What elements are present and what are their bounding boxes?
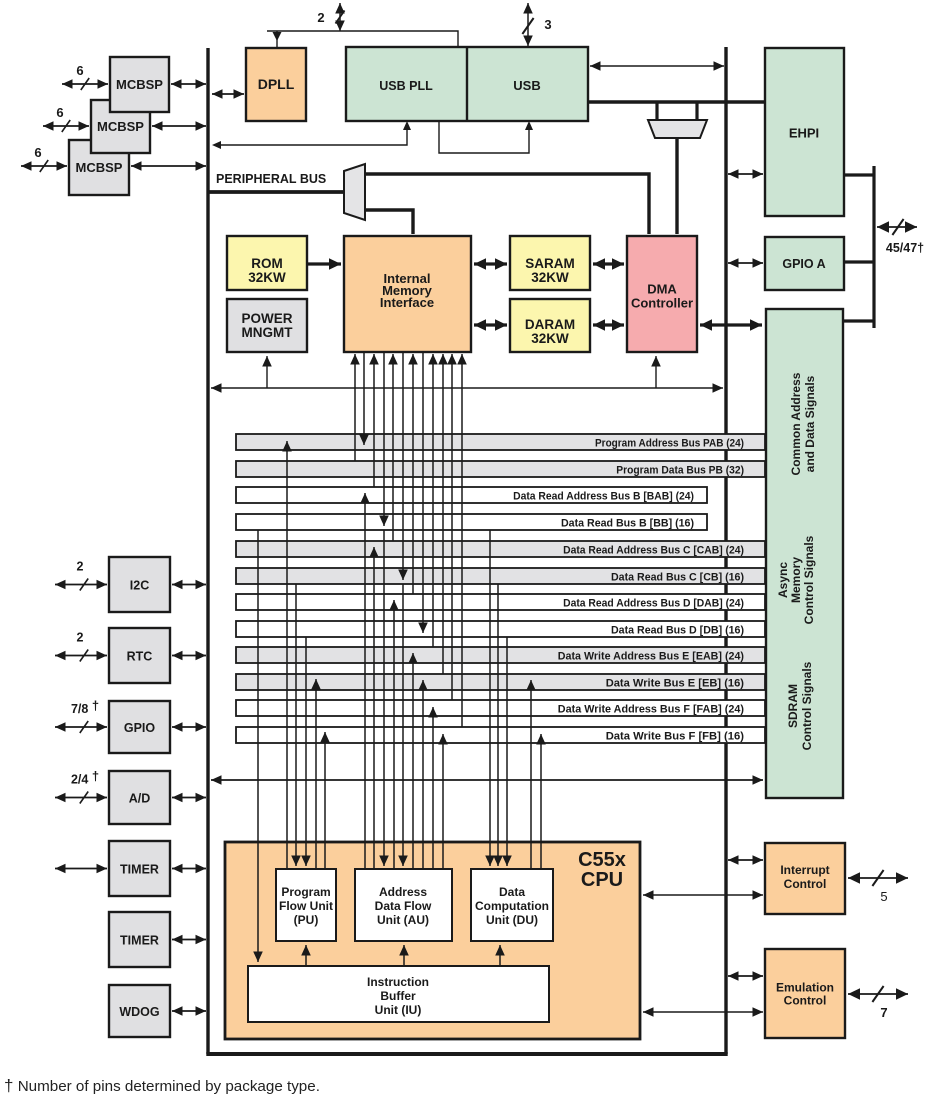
svg-text:6: 6 — [76, 63, 83, 78]
svg-text:(PU): (PU) — [294, 913, 319, 927]
svg-text:MCBSP: MCBSP — [97, 119, 144, 134]
svg-text:32KW: 32KW — [248, 270, 286, 285]
svg-text:MNGMT: MNGMT — [242, 325, 294, 340]
svg-text:TIMER: TIMER — [120, 933, 159, 947]
svg-text:Data Read Bus B [BB] (16): Data Read Bus B [BB] (16) — [561, 518, 694, 530]
svg-text:MCBSP: MCBSP — [76, 160, 123, 175]
svg-text:CPU: CPU — [581, 869, 623, 891]
svg-text:3: 3 — [544, 17, 551, 32]
svg-text:Program Data Bus PB (32): Program Data Bus PB (32) — [616, 465, 744, 477]
svg-text:RTC: RTC — [127, 649, 153, 663]
svg-text:Data Read Bus D [DB] (16): Data Read Bus D [DB] (16) — [611, 625, 744, 637]
svg-text:USB PLL: USB PLL — [379, 79, 433, 93]
svg-text:Data: Data — [499, 885, 525, 899]
svg-text:SARAM: SARAM — [525, 256, 575, 271]
svg-text:Control: Control — [784, 994, 827, 1008]
svg-text:DPLL: DPLL — [258, 76, 295, 92]
svg-text:Flow Unit: Flow Unit — [279, 899, 333, 913]
svg-text:EHPI: EHPI — [789, 126, 819, 141]
svg-text:Data Read Address Bus D [DAB]: Data Read Address Bus D [DAB] (24) — [563, 598, 744, 610]
svg-text:POWER: POWER — [241, 311, 292, 326]
svg-text:Data Write Address Bus E [EAB]: Data Write Address Bus E [EAB] (24) — [558, 651, 744, 663]
svg-text:ROM: ROM — [251, 256, 283, 271]
svg-text:Data Write Bus F [FB] (16): Data Write Bus F [FB] (16) — [606, 731, 745, 743]
svg-text:6: 6 — [56, 105, 63, 120]
svg-text:2: 2 — [77, 560, 84, 574]
svg-text:Program: Program — [281, 885, 330, 899]
svg-text:Address: Address — [379, 885, 427, 899]
svg-text:Interrupt: Interrupt — [780, 863, 829, 877]
svg-text:Instruction: Instruction — [367, 975, 429, 989]
svg-text:Emulation: Emulation — [776, 981, 834, 995]
svg-text:Unit (AU): Unit (AU) — [377, 913, 429, 927]
svg-text:Control Signals: Control Signals — [800, 661, 814, 750]
svg-text:Data Read Bus C [CB] (16): Data Read Bus C [CB] (16) — [611, 572, 744, 584]
svg-text:C55x: C55x — [578, 849, 626, 871]
svg-text:Computation: Computation — [475, 899, 549, 913]
svg-text:I2C: I2C — [130, 578, 149, 592]
svg-text:and Data Signals: and Data Signals — [803, 375, 817, 472]
svg-text:† Number of pins determined by: † Number of pins determined by package t… — [4, 1076, 320, 1095]
svg-text:Buffer: Buffer — [380, 989, 416, 1003]
svg-text:2: 2 — [317, 10, 324, 25]
svg-text:GPIO: GPIO — [124, 721, 156, 735]
svg-text:Control: Control — [784, 877, 827, 891]
svg-text:Program Address Bus PAB (24): Program Address Bus PAB (24) — [595, 438, 744, 450]
svg-text:MCBSP: MCBSP — [116, 77, 163, 92]
svg-text:45/47†: 45/47† — [886, 241, 924, 255]
svg-text:32KW: 32KW — [531, 331, 569, 346]
svg-text:32KW: 32KW — [531, 270, 569, 285]
svg-text:Memory: Memory — [789, 557, 803, 603]
svg-text:USB: USB — [513, 78, 540, 93]
svg-text:Unit (DU): Unit (DU) — [486, 913, 538, 927]
svg-text:DARAM: DARAM — [525, 317, 575, 332]
svg-text:Async: Async — [776, 562, 790, 598]
svg-text:5: 5 — [880, 889, 887, 904]
svg-text:7: 7 — [880, 1005, 887, 1020]
svg-text:A/D: A/D — [129, 791, 151, 805]
svg-text:WDOG: WDOG — [119, 1005, 159, 1019]
svg-text:Data Read Address Bus C [CAB]: Data Read Address Bus C [CAB] (24) — [563, 545, 744, 557]
svg-text:Data Flow: Data Flow — [375, 899, 432, 913]
svg-text:Data Write Address Bus F [FAB]: Data Write Address Bus F [FAB] (24) — [558, 704, 744, 716]
svg-text:Data Write Bus E [EB] (16): Data Write Bus E [EB] (16) — [606, 678, 745, 690]
svg-text:Unit (IU): Unit (IU) — [375, 1003, 422, 1017]
svg-text:PERIPHERAL BUS: PERIPHERAL BUS — [216, 172, 326, 186]
svg-text:Common Address: Common Address — [789, 372, 803, 475]
svg-text:Interface: Interface — [380, 295, 434, 310]
svg-text:TIMER: TIMER — [120, 862, 159, 876]
svg-text:Control Signals: Control Signals — [802, 535, 816, 624]
svg-text:SDRAM: SDRAM — [786, 684, 800, 728]
svg-text:Controller: Controller — [631, 296, 693, 311]
svg-text:2: 2 — [77, 631, 84, 645]
svg-text:6: 6 — [34, 145, 41, 160]
svg-text:DMA: DMA — [647, 282, 677, 297]
svg-text:GPIO A: GPIO A — [782, 257, 825, 271]
svg-text:Data Read Address Bus B [BAB]: Data Read Address Bus B [BAB] (24) — [513, 491, 694, 503]
